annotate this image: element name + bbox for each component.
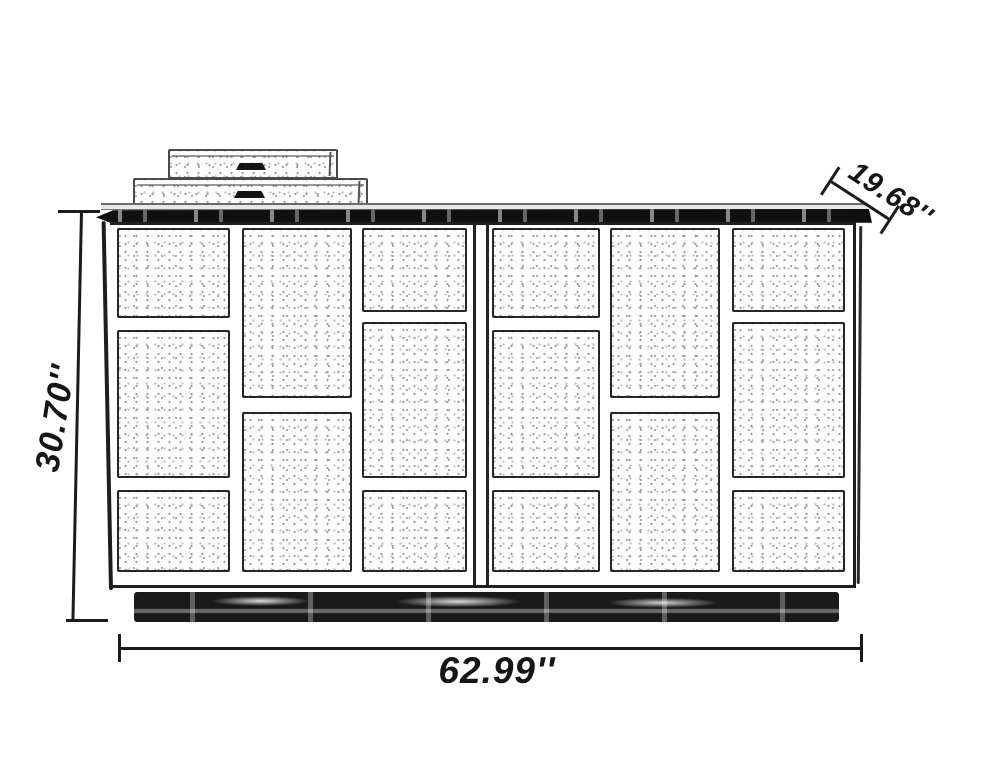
tray-side-edge: [329, 152, 332, 176]
tray-rim-line: [137, 184, 364, 186]
door-panel: [610, 228, 720, 398]
door-panel: [492, 228, 600, 318]
stacked-tray-top: [168, 149, 338, 179]
door-panel: [362, 490, 467, 572]
door-panel: [732, 490, 845, 572]
cabinet-top-edge: [101, 203, 867, 210]
door-panel: [117, 490, 230, 572]
width-dimension-label: 62.99'': [438, 650, 555, 692]
depth-dimension-start-tick: [820, 166, 840, 195]
door-panel: [492, 490, 600, 572]
door-panel: [242, 412, 352, 572]
tray-handle-notch: [236, 163, 266, 170]
furniture-dimension-drawing: 30.70'' 62.99'' 19.68'': [0, 0, 1000, 775]
tray-handle-notch: [234, 191, 265, 198]
door-panel: [362, 322, 467, 478]
door-panel: [492, 330, 600, 478]
door-panel: [732, 228, 845, 312]
tray-side-edge: [358, 181, 361, 204]
door-panel: [242, 228, 352, 398]
door-panel: [732, 322, 845, 478]
door-panel: [362, 228, 467, 312]
door-panel: [610, 412, 720, 572]
door-panel: [117, 330, 230, 478]
cabinet-base: [134, 592, 839, 622]
door-panel: [117, 228, 230, 318]
door-gap: [473, 225, 489, 585]
width-dimension-right-tick: [860, 634, 863, 662]
cabinet-front: [110, 222, 856, 588]
tray-rim-line: [172, 155, 334, 157]
cabinet-right-edge: [857, 226, 862, 584]
height-dimension-bottom-tick: [66, 619, 108, 622]
